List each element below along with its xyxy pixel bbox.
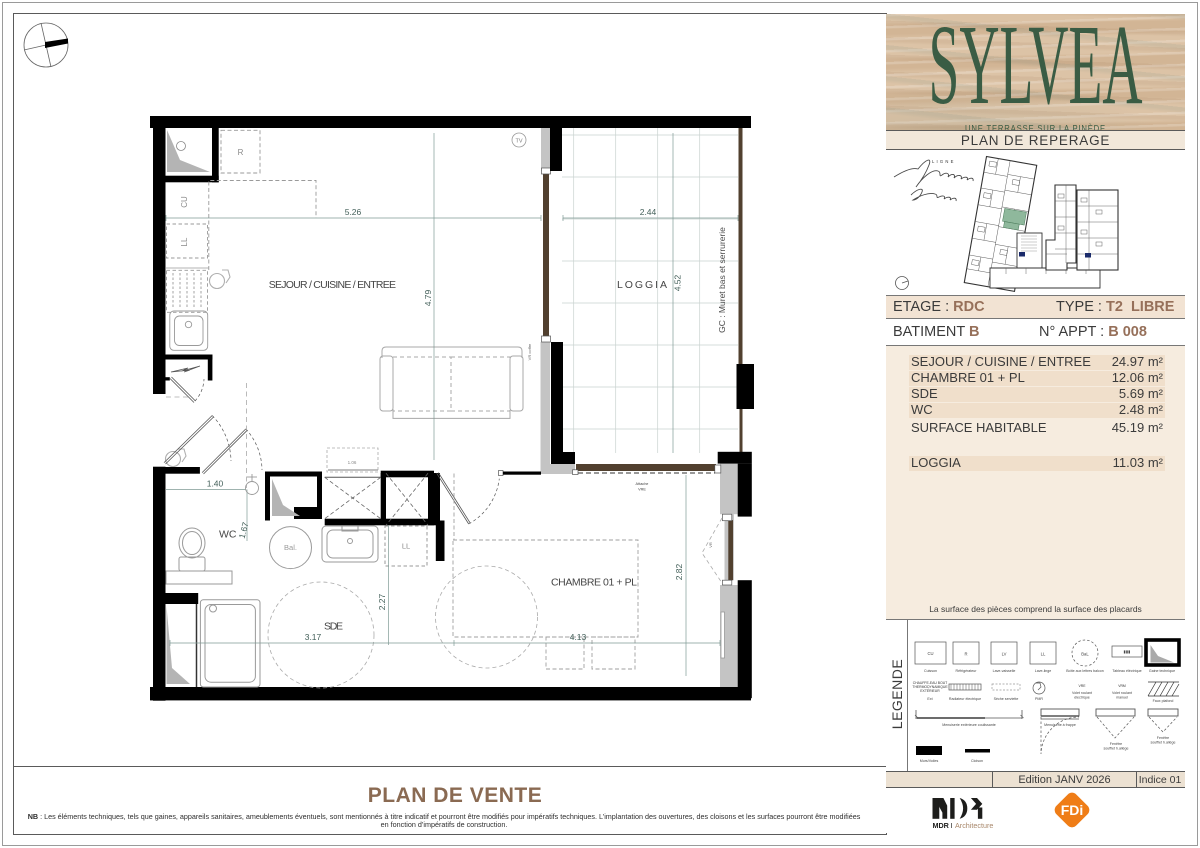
svg-text:Murs/Voiles: Murs/Voiles [920,759,939,763]
svg-text:4.13: 4.13 [570,632,587,642]
svg-text:soufflet h.allège: soufflet h.allège [1150,741,1175,745]
svg-text:Architecture: Architecture [955,821,993,830]
svg-text:LOGGIA: LOGGIA [617,279,667,291]
svg-text:Gaine technique: Gaine technique [1149,669,1175,673]
svg-text:Cloison: Cloison [971,759,983,763]
svg-text:Lave-linge: Lave-linge [1035,669,1052,673]
svg-text:VR coffre: VR coffre [527,343,532,360]
svg-text:R: R [238,148,244,157]
svg-text:Radiateur électrique: Radiateur électrique [949,697,981,701]
svg-text:Faux plafond: Faux plafond [1153,699,1174,703]
svg-text:Fenêtre: Fenêtre [1110,742,1122,746]
svg-text:LL: LL [180,237,189,246]
svg-text:Cuisson: Cuisson [924,669,937,673]
svg-text:soufflet h.allège: soufflet h.allège [1103,747,1128,751]
svg-text:Bal.: Bal. [284,543,297,552]
svg-text:Volet roulant: Volet roulant [1072,691,1092,695]
svg-text:Ext: Ext [927,697,932,701]
svg-text:5.26: 5.26 [345,207,362,217]
svg-text:VRE: VRE [1079,684,1087,688]
svg-text:manuel: manuel [1116,696,1128,700]
svg-text:1.67: 1.67 [237,521,251,540]
svg-text:LL: LL [1041,652,1046,657]
svg-text:3.17: 3.17 [305,632,322,642]
svg-text:LL: LL [402,542,410,551]
svg-text:Boîte aux lettres balcon: Boîte aux lettres balcon [1066,669,1104,673]
svg-text:Lave-vaisselle: Lave-vaisselle [993,669,1016,673]
svg-text:4.79: 4.79 [423,289,433,306]
svg-text:VR: VR [708,542,713,548]
svg-text:SEJOUR / CUISINE / ENTREE: SEJOUR / CUISINE / ENTREE [269,279,396,291]
svg-text:VRE: VRE [638,488,646,492]
svg-text:Menuiserie extérieure coulissa: Menuiserie extérieure coulissante [942,723,996,727]
svg-text:FDi: FDi [1061,802,1084,818]
svg-text:MDR: MDR [933,821,950,830]
svg-text:WC: WC [219,529,237,541]
svg-text:1.06: 1.06 [348,460,357,465]
svg-text:Fenêtre: Fenêtre [1157,736,1169,740]
svg-text:LV: LV [1002,652,1007,657]
svg-text:Attache: Attache [636,482,649,486]
svg-text:électrique: électrique [1074,696,1090,700]
svg-text:R: R [964,652,967,657]
svg-text:2.44: 2.44 [640,207,657,217]
svg-text:Tableau éléctrique: Tableau éléctrique [1112,669,1141,673]
svg-text:I: I [951,821,953,830]
svg-text:VRM: VRM [1118,684,1126,688]
svg-text:2.27: 2.27 [377,593,387,610]
svg-text:1.40: 1.40 [207,479,224,489]
svg-text:2.82: 2.82 [674,563,684,580]
svg-text:Volet roulant: Volet roulant [1112,691,1132,695]
svg-text:TV: TV [515,139,522,145]
svg-text:SDE: SDE [324,621,343,633]
svg-text:CU: CU [180,196,189,208]
svg-text:PMR: PMR [1035,697,1043,701]
svg-text:▮▮▮: ▮▮▮ [1124,649,1131,654]
svg-text:Réfrigérateur: Réfrigérateur [956,669,978,673]
svg-text:CHAMBRE 01 + PL: CHAMBRE 01 + PL [551,577,637,589]
svg-text:Sèche serviette: Sèche serviette [994,697,1019,701]
svg-text:4.52: 4.52 [673,274,683,291]
svg-text:Menuiserie à frappe: Menuiserie à frappe [1044,723,1076,727]
svg-text:EXTÉRIEUR: EXTÉRIEUR [920,688,940,693]
svg-text:GC : Muret bas et serrurerie: GC : Muret bas et serrurerie [717,227,727,333]
svg-text:CU: CU [927,651,933,656]
svg-text:LIGNE: LIGNE [932,159,956,164]
svg-text:SYLVEA: SYLVEA [929,14,1143,128]
svg-text:BaL: BaL [1081,652,1089,657]
